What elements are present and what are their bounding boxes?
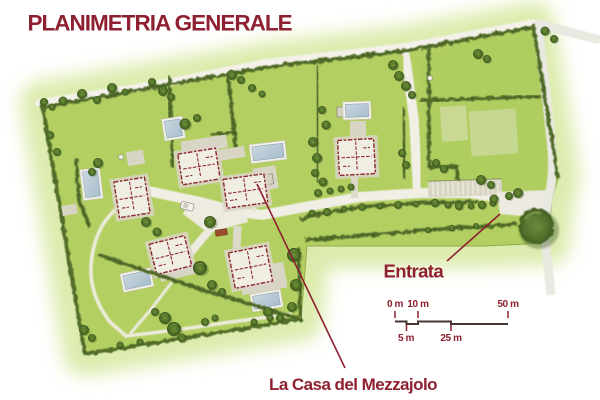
svg-text:5 m: 5 m <box>398 333 415 344</box>
svg-text:0 m: 0 m <box>387 299 404 310</box>
svg-text:25 m: 25 m <box>440 333 462 344</box>
svg-text:50 m: 50 m <box>497 299 519 310</box>
svg-text:PLANIMETRIA GENERALE: PLANIMETRIA GENERALE <box>28 11 293 36</box>
svg-text:10 m: 10 m <box>407 299 429 310</box>
svg-text:Entrata: Entrata <box>384 261 445 282</box>
svg-text:La Casa del Mezzajolo: La Casa del Mezzajolo <box>269 375 437 394</box>
